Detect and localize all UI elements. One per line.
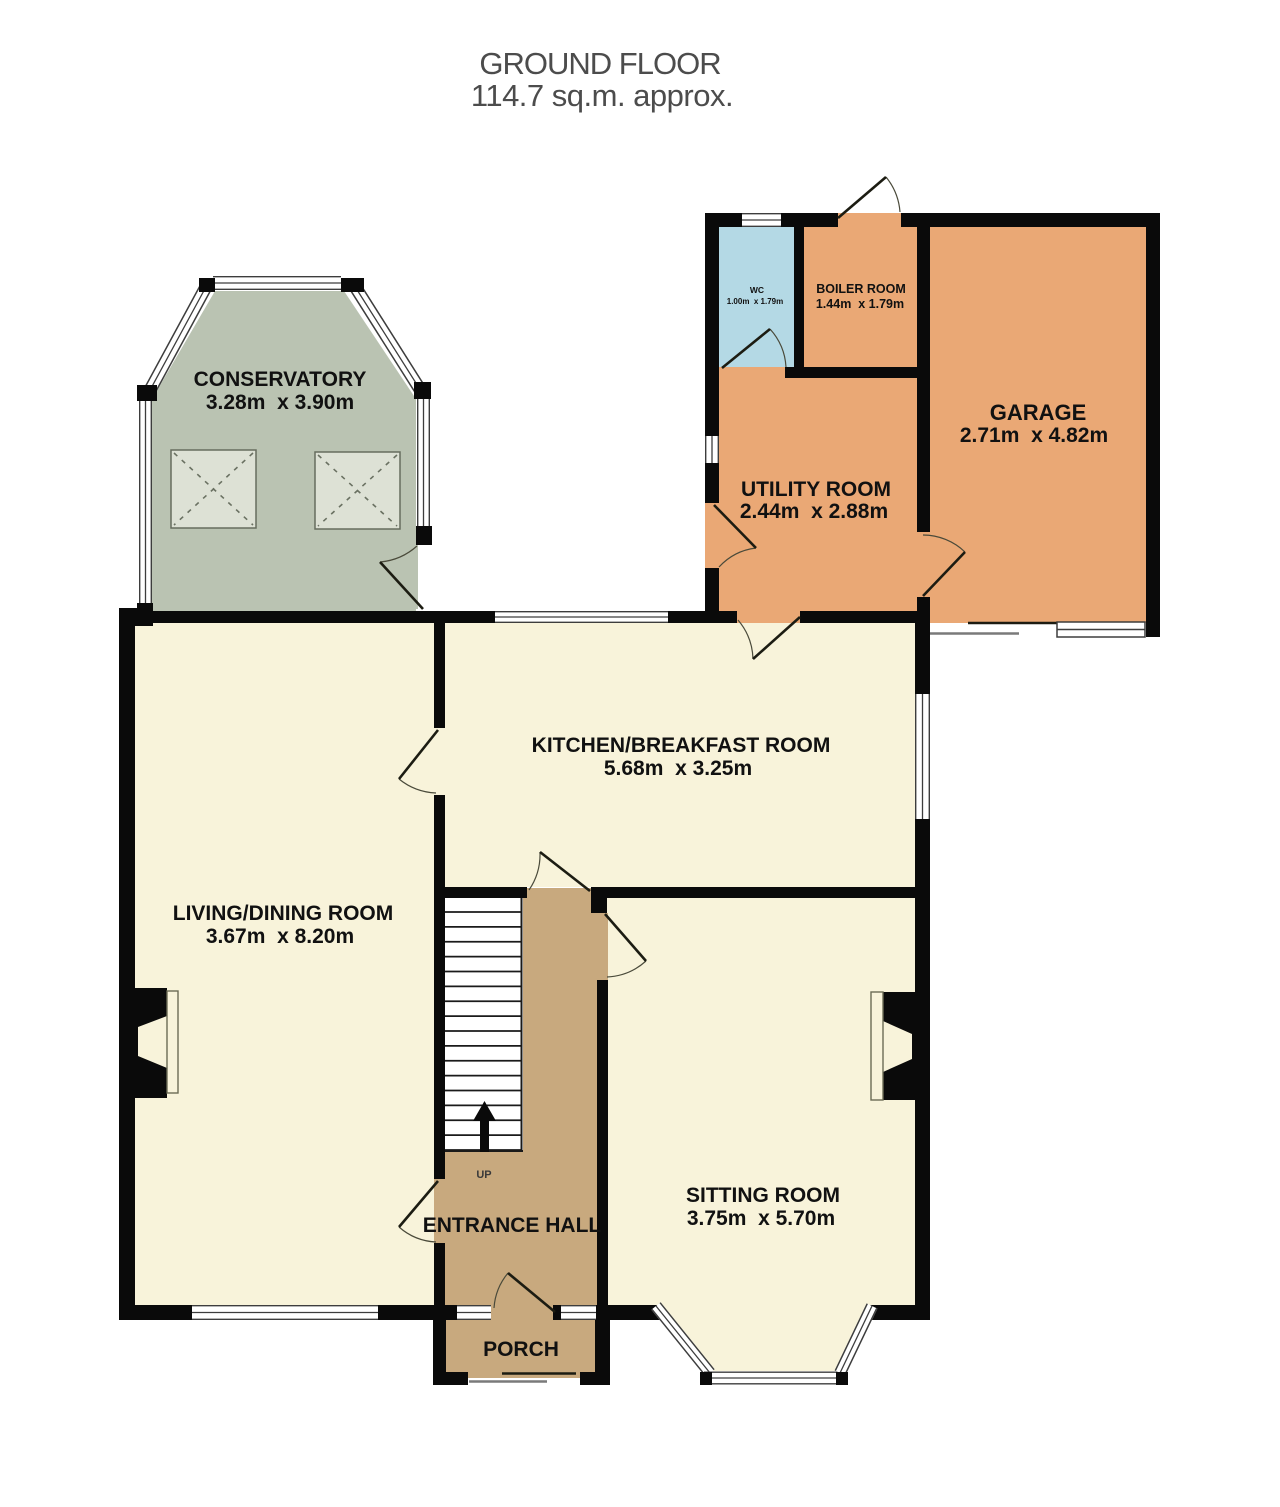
svg-text:5.68m x 3.25m: 5.68m x 3.25m [604,757,752,780]
svg-text:3.28m x 3.90m: 3.28m x 3.90m [206,391,354,414]
svg-text:KITCHEN/BREAKFAST ROOM: KITCHEN/BREAKFAST ROOM [532,734,831,757]
svg-text:3.75m x 5.70m: 3.75m x 5.70m [687,1207,835,1230]
svg-text:1.00m x 1.79m: 1.00m x 1.79m [727,297,783,306]
svg-text:CONSERVATORY: CONSERVATORY [194,368,367,391]
svg-text:3.67m x 8.20m: 3.67m x 8.20m [206,925,354,948]
svg-text:1.44m x 1.79m: 1.44m x 1.79m [816,297,904,311]
svg-text:SITTING ROOM: SITTING ROOM [686,1184,840,1207]
svg-text:2.71m x 4.82m: 2.71m x 4.82m [960,424,1108,447]
svg-text:UTILITY ROOM: UTILITY ROOM [741,478,891,501]
svg-text:BOILER ROOM: BOILER ROOM [816,282,906,296]
svg-text:PORCH: PORCH [483,1338,559,1361]
svg-text:GROUND FLOOR: GROUND FLOOR [479,46,720,81]
svg-text:114.7 sq.m. approx.: 114.7 sq.m. approx. [471,78,733,113]
svg-text:WC: WC [750,285,764,295]
svg-text:GARAGE: GARAGE [990,400,1087,425]
svg-text:LIVING/DINING ROOM: LIVING/DINING ROOM [173,902,394,925]
svg-text:ENTRANCE HALL: ENTRANCE HALL [423,1214,602,1237]
svg-text:2.44m x 2.88m: 2.44m x 2.88m [740,500,888,523]
svg-text:UP: UP [476,1169,491,1181]
